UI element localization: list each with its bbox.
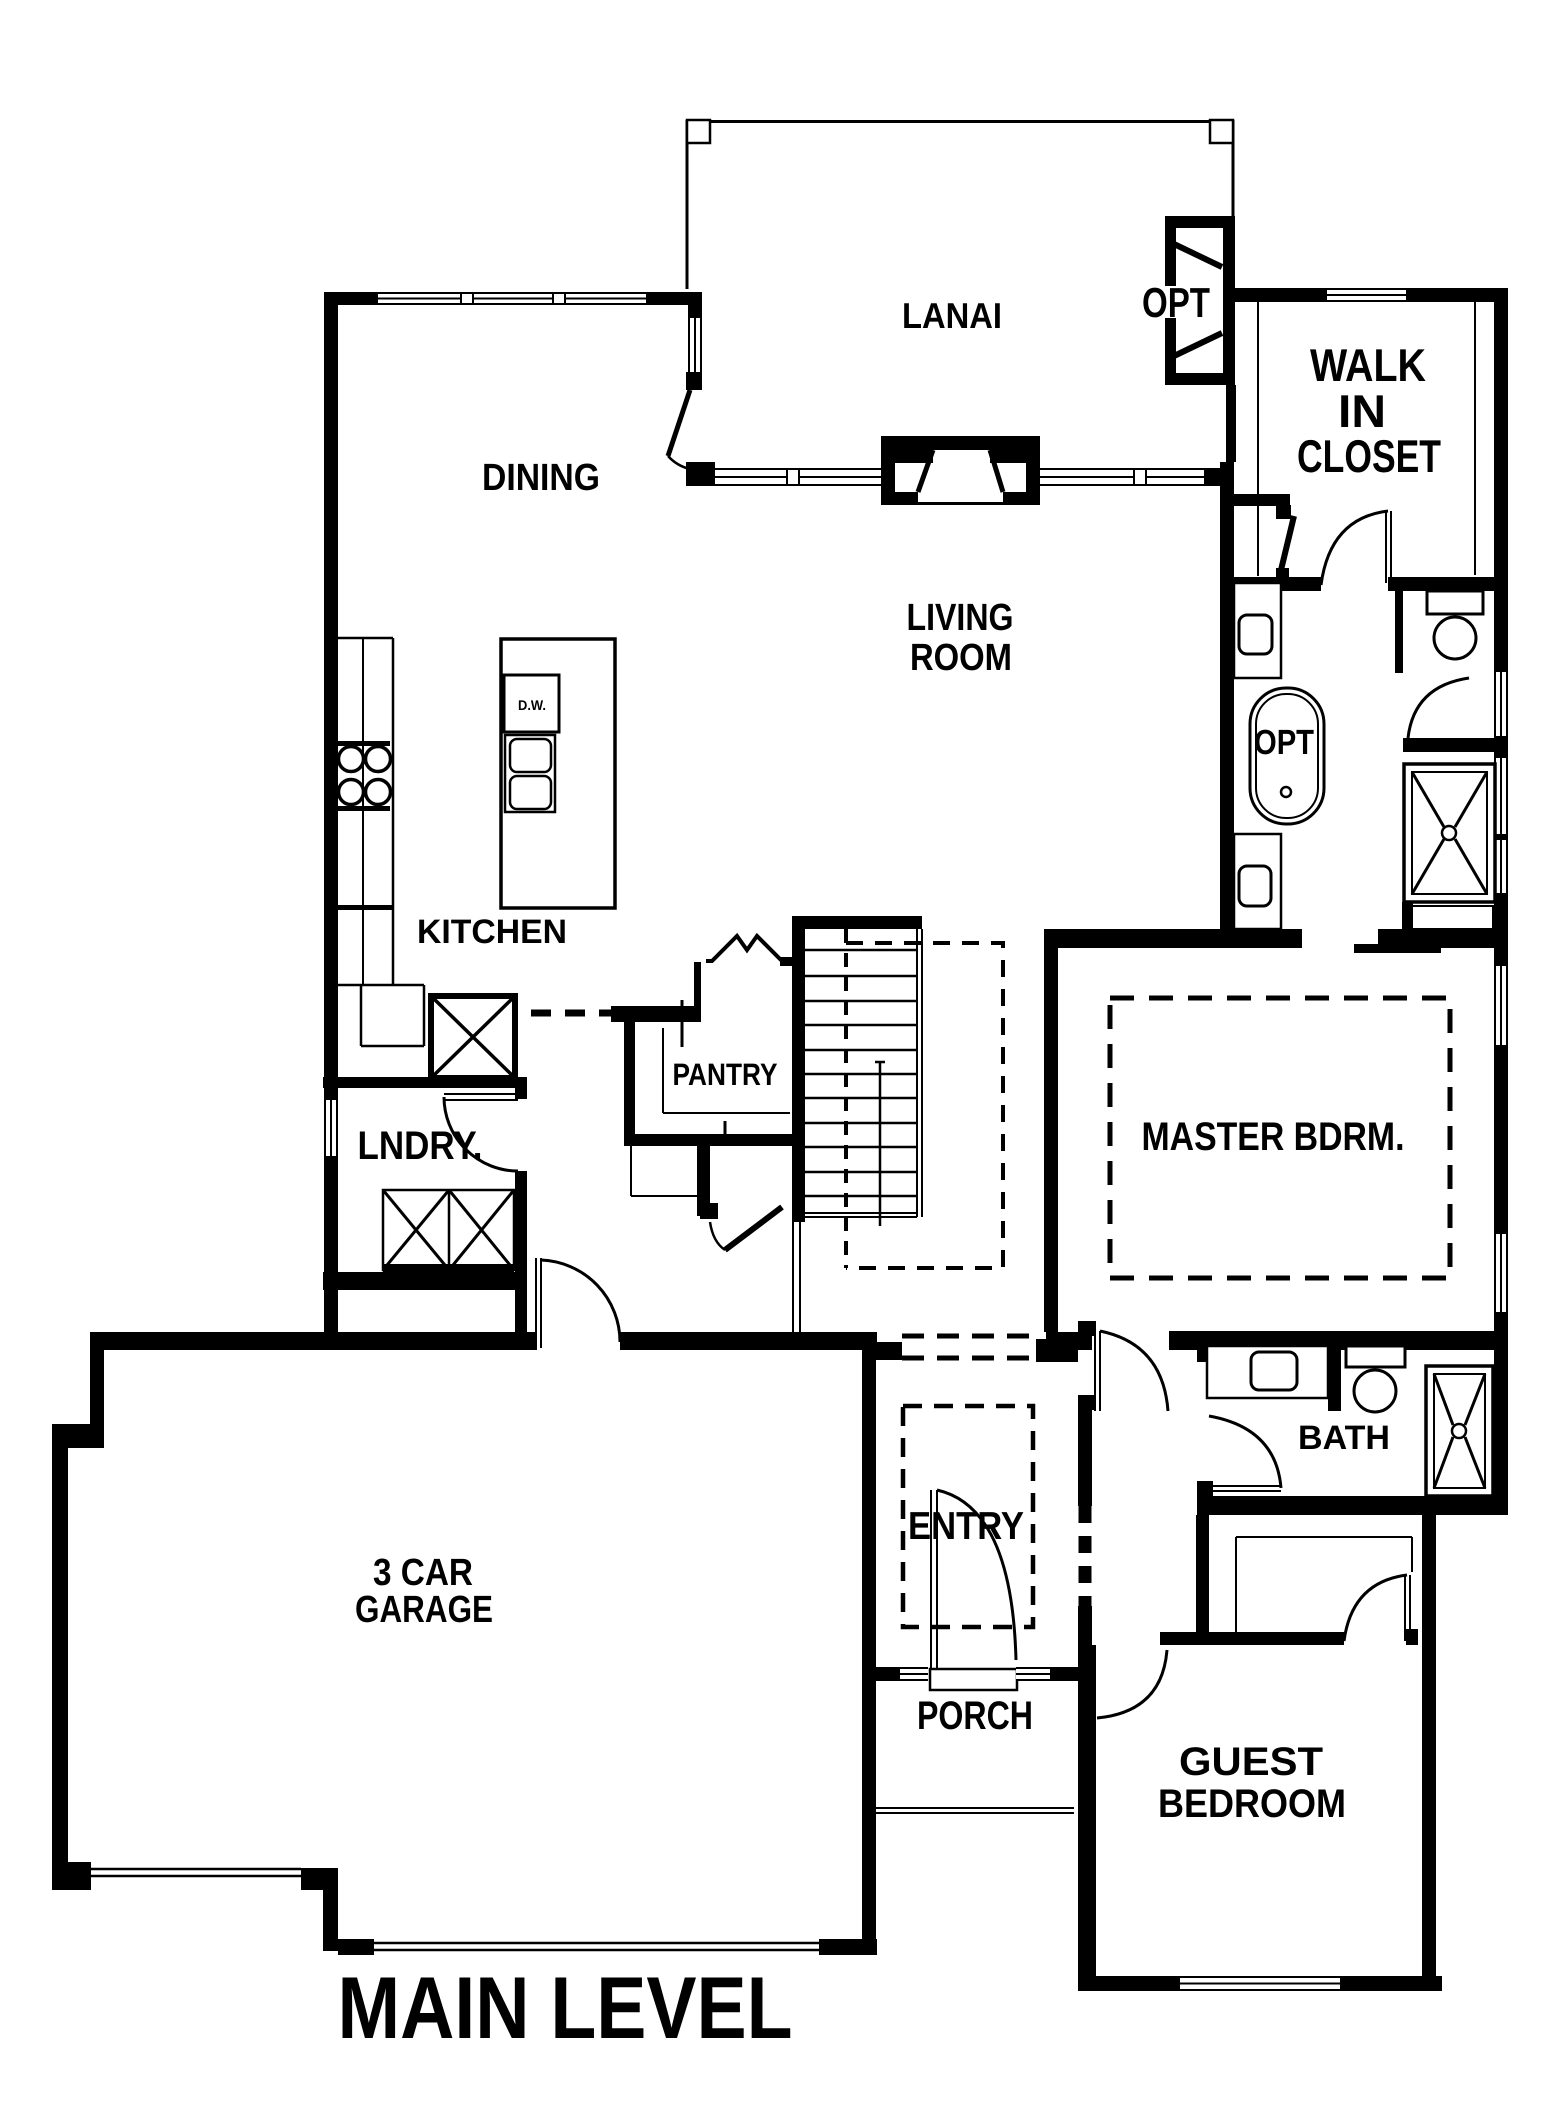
svg-text:PANTRY: PANTRY [673, 1057, 778, 1092]
svg-text:LANAI: LANAI [902, 295, 1002, 336]
svg-text:LNDRY.: LNDRY. [358, 1124, 483, 1168]
svg-text:ROOM: ROOM [910, 637, 1012, 679]
svg-text:PORCH: PORCH [917, 1694, 1033, 1738]
svg-text:DINING: DINING [482, 457, 600, 499]
svg-text:BEDROOM: BEDROOM [1158, 1782, 1346, 1826]
svg-text:GUEST: GUEST [1179, 1740, 1323, 1784]
svg-text:BATH: BATH [1298, 1419, 1390, 1457]
svg-text:3 CAR: 3 CAR [373, 1552, 473, 1594]
svg-text:OPT: OPT [1142, 279, 1210, 326]
svg-text:ENTRY: ENTRY [908, 1505, 1024, 1548]
svg-text:MASTER BDRM.: MASTER BDRM. [1142, 1115, 1405, 1159]
svg-text:WALK: WALK [1310, 339, 1426, 391]
svg-text:GARAGE: GARAGE [355, 1589, 493, 1631]
svg-text:KITCHEN: KITCHEN [417, 913, 567, 951]
svg-text:D.W.: D.W. [518, 697, 546, 713]
svg-text:MAIN LEVEL: MAIN LEVEL [338, 1958, 793, 2057]
svg-text:OPT: OPT [1254, 723, 1314, 762]
svg-text:CLOSET: CLOSET [1297, 430, 1441, 482]
svg-text:LIVING: LIVING [907, 597, 1014, 639]
